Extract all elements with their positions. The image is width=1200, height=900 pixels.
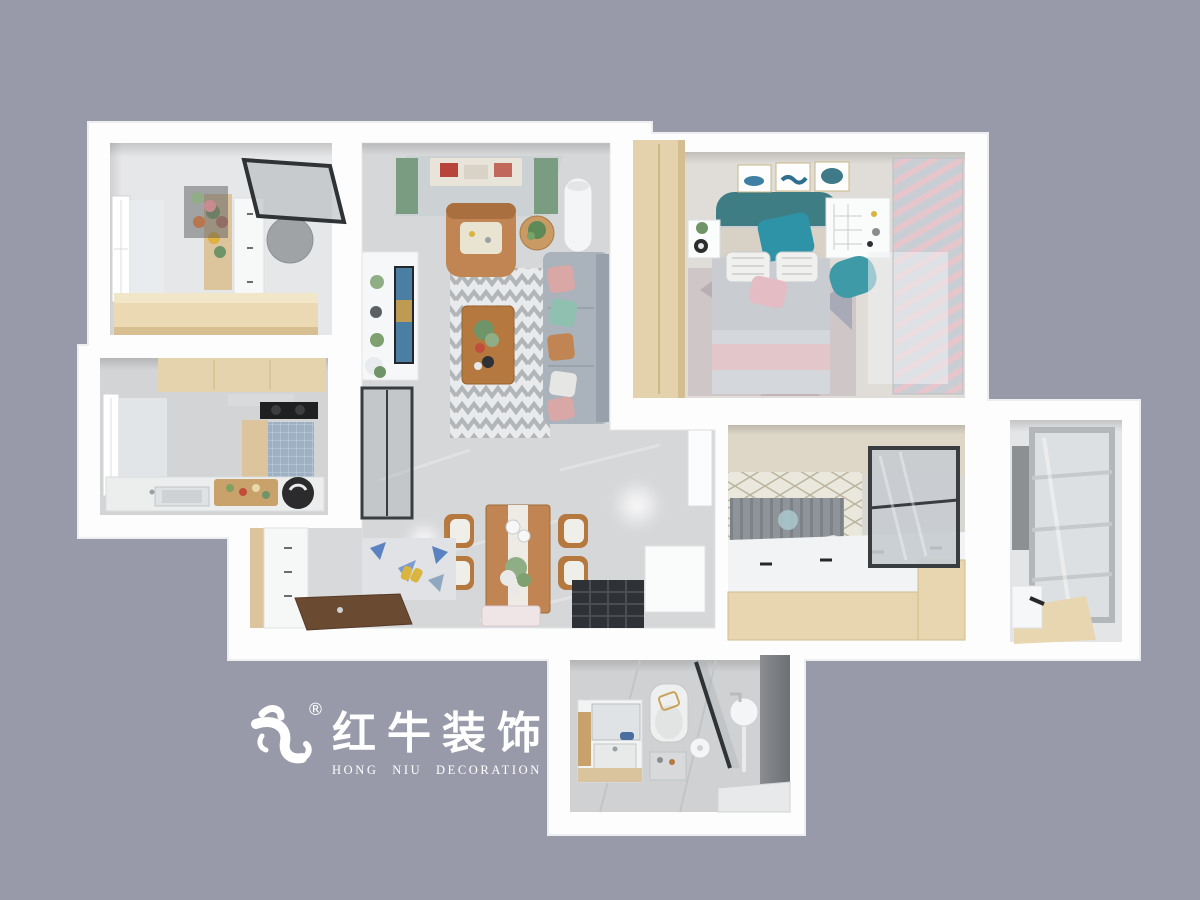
plant-shelf bbox=[184, 186, 228, 238]
kitchen-wood-counter bbox=[242, 420, 268, 478]
bull-tail bbox=[302, 744, 309, 758]
sofa-pillow-teal bbox=[548, 298, 578, 328]
apartment-structure bbox=[0, 0, 1200, 900]
registered-mark: ® bbox=[307, 702, 324, 719]
vanity bbox=[578, 700, 642, 782]
mosaic-floor bbox=[266, 422, 314, 478]
kitchen-glass-door bbox=[362, 388, 412, 518]
cutting-board bbox=[214, 479, 278, 506]
upper-cabinets bbox=[158, 358, 326, 392]
kitchen bbox=[100, 358, 328, 515]
bathroom bbox=[570, 655, 790, 812]
storage-cart bbox=[650, 752, 686, 780]
cooking-pot bbox=[282, 477, 314, 509]
bedroom2-window bbox=[870, 448, 958, 566]
entry-wood-panel bbox=[250, 528, 264, 628]
nightstand bbox=[688, 220, 720, 258]
study-room bbox=[110, 143, 344, 335]
patterned-tile-floor bbox=[362, 538, 456, 600]
curtain-right bbox=[534, 158, 558, 214]
coffee-table bbox=[462, 306, 514, 384]
bull-horn bbox=[262, 709, 281, 717]
sofa bbox=[543, 252, 609, 424]
pink-throw bbox=[712, 344, 830, 370]
brand-name-en: HONG NIU DECORATION bbox=[332, 763, 552, 778]
floor-grate bbox=[572, 580, 644, 628]
balcony-window bbox=[1032, 430, 1112, 620]
nightstand-plant bbox=[696, 222, 708, 234]
shoe-cabinet bbox=[645, 546, 705, 612]
master-bedroom bbox=[633, 140, 965, 398]
vanity-shelf bbox=[578, 712, 591, 766]
rain-shower-head bbox=[730, 698, 758, 726]
floorplan-render: ® 红牛装饰 HONG NIU DECORATION bbox=[0, 0, 1200, 900]
sofa-pillow-pink bbox=[546, 264, 575, 293]
sofa-pillow-white bbox=[548, 370, 577, 397]
sheer-curtain bbox=[868, 252, 948, 384]
side-table bbox=[520, 216, 554, 250]
bull-leg bbox=[260, 736, 266, 750]
towel bbox=[620, 732, 634, 740]
bed bbox=[712, 192, 838, 394]
brand-name-cn: 红牛装饰 bbox=[332, 712, 552, 756]
bull-body bbox=[256, 722, 302, 758]
wall-art bbox=[738, 162, 849, 192]
second-bedroom bbox=[728, 425, 965, 640]
doormat bbox=[482, 606, 540, 626]
curtain-left bbox=[396, 158, 418, 214]
wardrobe bbox=[633, 140, 685, 398]
air-conditioner bbox=[564, 178, 592, 252]
ceiling-light-glow bbox=[611, 479, 663, 531]
bedroom-desk bbox=[826, 198, 890, 258]
tv-wall bbox=[362, 252, 418, 380]
wood-door-panel bbox=[295, 594, 412, 630]
platform-bed bbox=[114, 293, 318, 335]
study-window bbox=[112, 196, 164, 302]
wall-plant bbox=[370, 275, 384, 289]
bull-logo-icon: ® bbox=[248, 700, 322, 776]
brand-text: 红牛装饰 HONG NIU DECORATION bbox=[332, 700, 552, 778]
armchair bbox=[446, 203, 516, 277]
entry-door-open bbox=[688, 430, 712, 506]
brand-watermark: ® 红牛装饰 HONG NIU DECORATION bbox=[248, 700, 552, 778]
balcony-cabinet bbox=[1012, 586, 1042, 628]
sofa-pillow-tan bbox=[547, 333, 576, 362]
glass-partition bbox=[244, 160, 344, 222]
cooktop bbox=[260, 402, 318, 419]
utility-balcony bbox=[1010, 420, 1122, 644]
